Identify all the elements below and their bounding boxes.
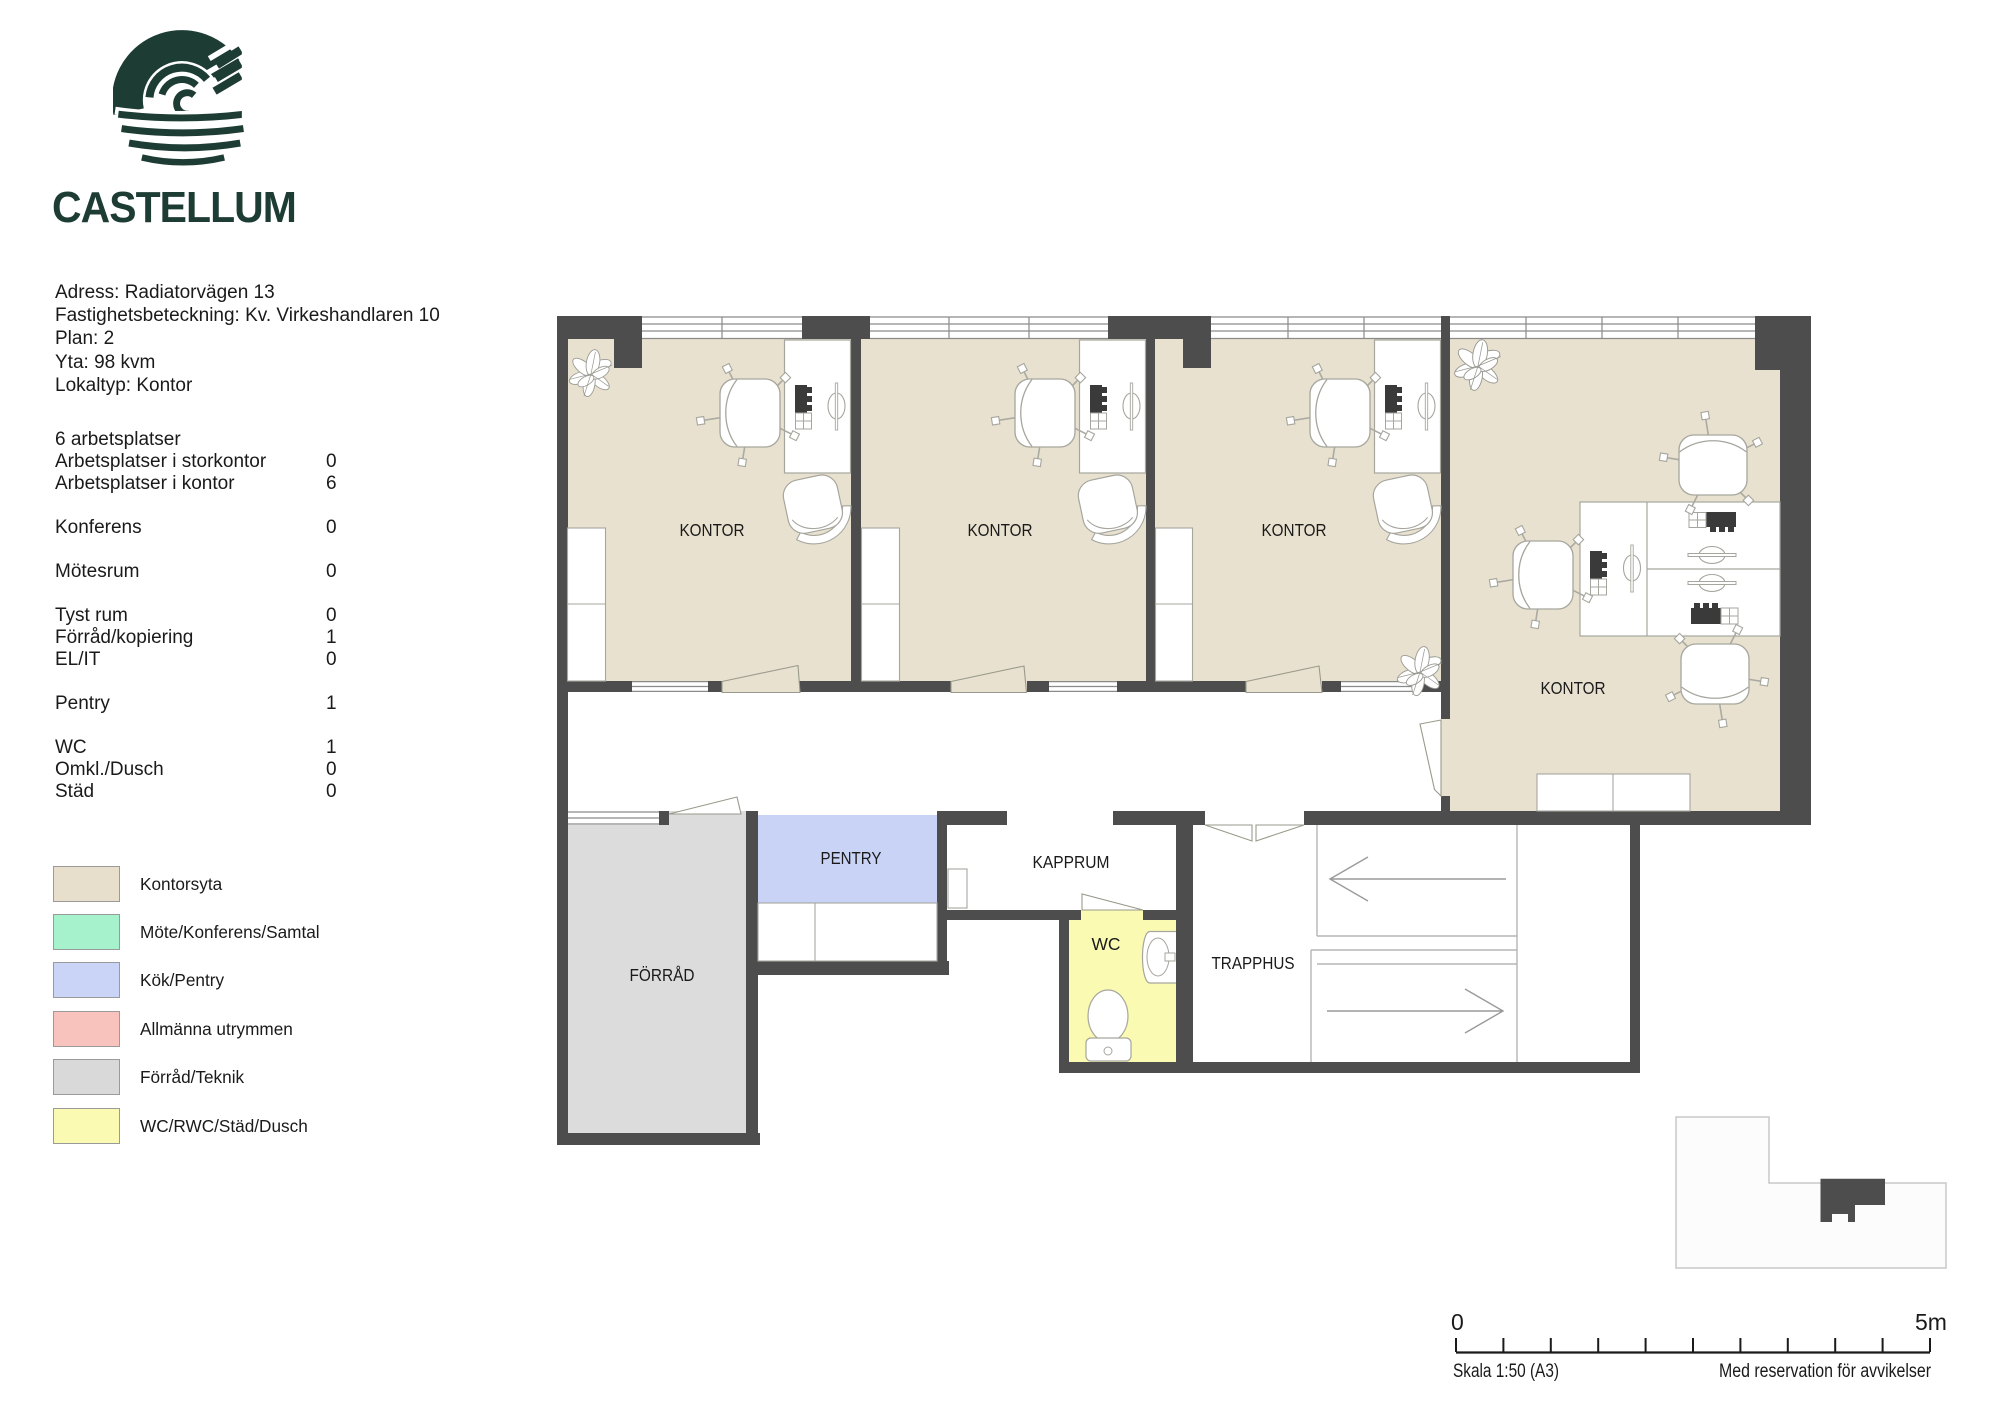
svg-text:PENTRY: PENTRY: [821, 848, 882, 868]
svg-text:0: 0: [1451, 1309, 1464, 1335]
svg-text:Skala 1:50 (A3): Skala 1:50 (A3): [1453, 1361, 1559, 1382]
svg-text:WC: WC: [1092, 934, 1121, 954]
svg-text:KONTOR: KONTOR: [1262, 520, 1327, 540]
svg-text:KONTOR: KONTOR: [1541, 678, 1606, 698]
svg-text:KONTOR: KONTOR: [968, 520, 1033, 540]
svg-text:FÖRRÅD: FÖRRÅD: [630, 965, 695, 985]
svg-text:KAPPRUM: KAPPRUM: [1033, 852, 1110, 872]
svg-text:Med reservation för avvikelser: Med reservation för avvikelser: [1719, 1361, 1932, 1382]
svg-text:5m: 5m: [1915, 1309, 1947, 1335]
svg-text:KONTOR: KONTOR: [680, 520, 745, 540]
svg-text:TRAPPHUS: TRAPPHUS: [1212, 953, 1295, 973]
